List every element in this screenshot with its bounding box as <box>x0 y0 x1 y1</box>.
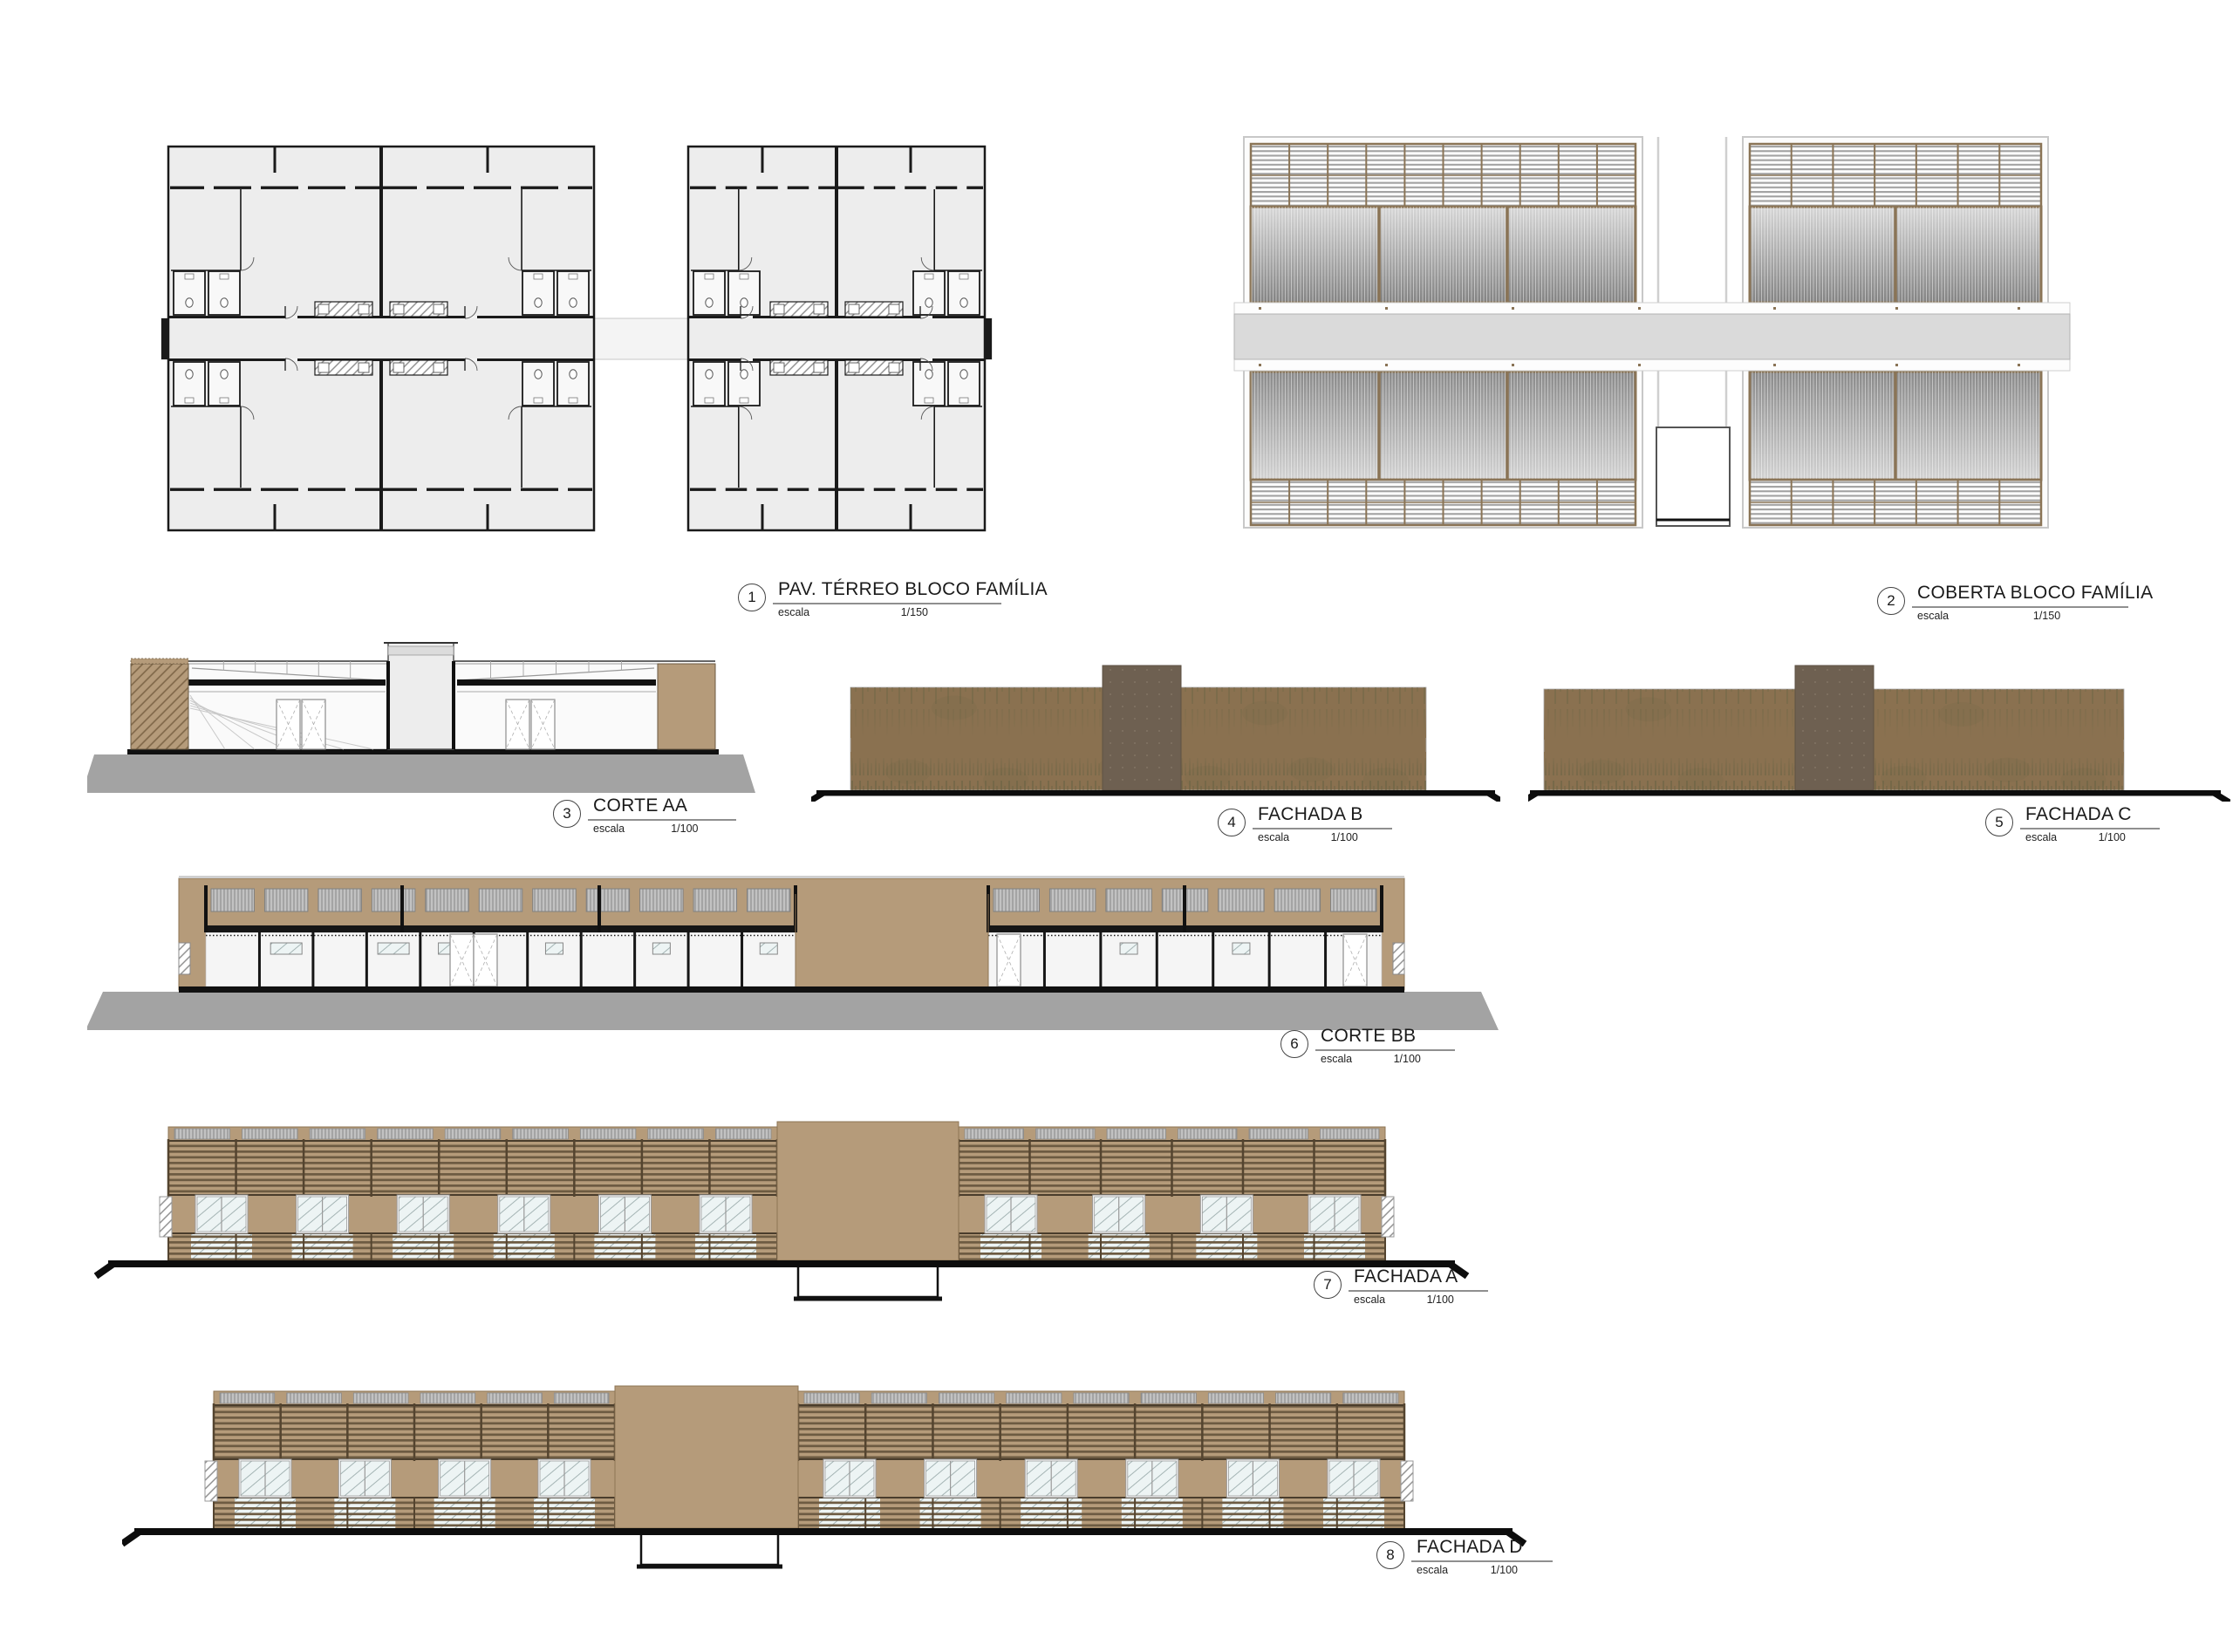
roof-plan-coberta <box>1233 131 2072 532</box>
view-number: 7 <box>1323 1276 1331 1294</box>
section-corte-bb <box>87 859 1500 1038</box>
view-title: FACHADA D <box>1411 1537 1553 1562</box>
view-number: 2 <box>1887 592 1895 610</box>
scale-value: 1/100 <box>671 823 698 835</box>
scale-word: escala <box>2025 831 2057 843</box>
view-title: FACHADA C <box>2020 804 2160 829</box>
elevation-fachada-b <box>811 639 1500 802</box>
view-number: 1 <box>748 589 755 606</box>
view-title: PAV. TÉRREO BLOCO FAMÍLIA <box>773 579 1001 604</box>
view-number: 5 <box>1995 814 2003 831</box>
view-number: 4 <box>1227 814 1235 831</box>
view-label-fachada-d: 8 FACHADA D escala1/100 <box>1376 1537 1553 1576</box>
section-corte-aa <box>87 639 759 801</box>
view-number-badge: 2 <box>1877 587 1905 615</box>
scale-word: escala <box>1417 1564 1448 1576</box>
view-number: 3 <box>563 805 570 823</box>
architecture-sheet: 1 PAV. TÉRREO BLOCO FAMÍLIA escala1/150 … <box>0 0 2233 1652</box>
scale-word: escala <box>1321 1053 1352 1065</box>
view-label-pav-terreo: 1 PAV. TÉRREO BLOCO FAMÍLIA escala1/150 <box>738 579 1001 618</box>
view-number-badge: 6 <box>1280 1030 1308 1058</box>
elevation-fachada-c <box>1528 639 2230 802</box>
view-number: 6 <box>1290 1035 1298 1053</box>
view-number-badge: 8 <box>1376 1541 1404 1569</box>
view-label-fachada-c: 5 FACHADA C escala1/100 <box>1985 804 2160 843</box>
view-number: 8 <box>1386 1546 1394 1564</box>
view-label-fachada-b: 4 FACHADA B escala1/100 <box>1218 804 1392 843</box>
view-title: COBERTA BLOCO FAMÍLIA <box>1912 583 2128 608</box>
scale-value: 1/100 <box>1491 1564 1518 1576</box>
scale-word: escala <box>1258 831 1289 843</box>
scale-value: 1/150 <box>901 606 928 618</box>
view-title: FACHADA B <box>1253 804 1392 829</box>
view-title: CORTE AA <box>588 795 736 821</box>
floor-plan-pav-terreo <box>157 138 994 532</box>
scale-value: 1/100 <box>1427 1294 1454 1306</box>
elevation-fachada-a <box>94 1115 1472 1311</box>
scale-value: 1/100 <box>1394 1053 1421 1065</box>
view-label-fachada-a: 7 FACHADA A escala1/100 <box>1314 1266 1488 1306</box>
view-label-corte-aa: 3 CORTE AA escala1/100 <box>553 795 736 835</box>
scale-value: 1/150 <box>2033 610 2060 622</box>
view-title: CORTE BB <box>1315 1026 1455 1051</box>
scale-word: escala <box>778 606 809 618</box>
view-number-badge: 7 <box>1314 1271 1342 1299</box>
view-number-badge: 5 <box>1985 809 2013 836</box>
scale-word: escala <box>1354 1294 1385 1306</box>
view-title: FACHADA A <box>1349 1266 1488 1292</box>
view-label-coberta: 2 COBERTA BLOCO FAMÍLIA escala1/150 <box>1877 583 2128 622</box>
view-number-badge: 3 <box>553 800 581 828</box>
scale-value: 1/100 <box>1331 831 1358 843</box>
view-number-badge: 4 <box>1218 809 1246 836</box>
scale-word: escala <box>593 823 625 835</box>
view-label-corte-bb: 6 CORTE BB escala1/100 <box>1280 1026 1455 1065</box>
scale-word: escala <box>1917 610 1949 622</box>
view-number-badge: 1 <box>738 584 766 611</box>
scale-value: 1/100 <box>2099 831 2126 843</box>
elevation-fachada-d <box>122 1381 1535 1581</box>
